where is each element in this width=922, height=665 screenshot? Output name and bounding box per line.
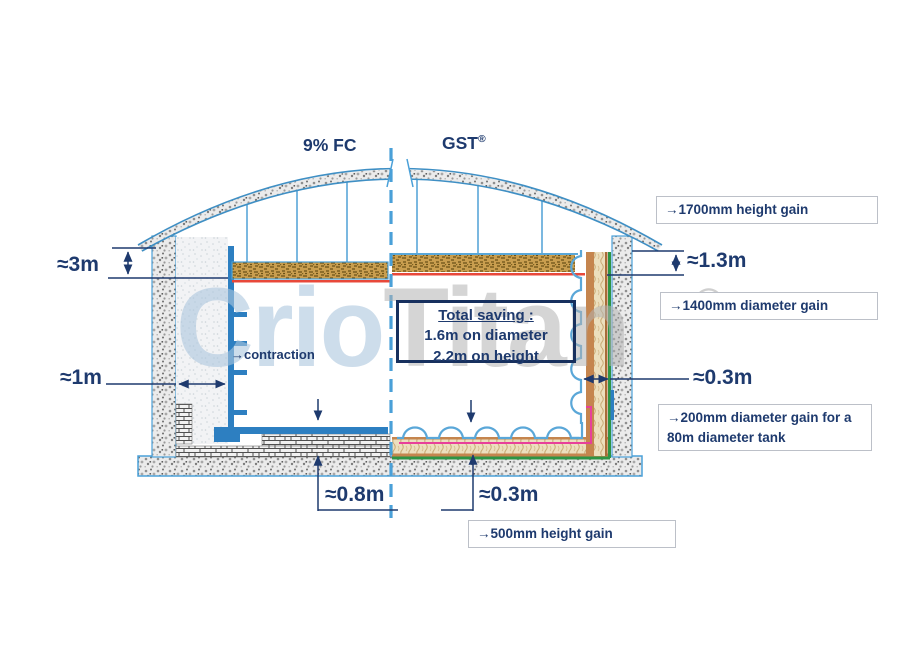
watermark-part1: Crio [176, 265, 383, 390]
callout-1700mm-height-gain: →1700mm height gain [656, 196, 878, 224]
total-saving-height: 2.2m on height [399, 347, 573, 367]
fc-column-header: 9% FC [303, 135, 356, 156]
dim-floor-left-label: ≈0.8m [325, 483, 384, 507]
total-saving-diameter: 1.6m on diameter [399, 326, 573, 346]
dim-left-height-label: ≈3m [57, 253, 99, 277]
left-concrete-wall [152, 236, 176, 457]
contraction-label: →contraction [231, 347, 315, 362]
total-saving-box: Total saving : 1.6m on diameter 2.2m on … [396, 300, 576, 363]
callout-500mm-height-gain: →500mm height gain [468, 520, 676, 548]
total-saving-title: Total saving : [399, 306, 573, 326]
dome-roof [138, 157, 662, 251]
gst-header-text: GST [442, 133, 478, 153]
callout-1400mm-diameter-gain: →1400mm diameter gain [660, 292, 878, 320]
callout-200mm-diameter-gain: →200mm diameter gain for a 80m diameter … [658, 404, 872, 451]
gst-floor-insulation [392, 437, 608, 457]
gst-wall-blue-segment [611, 390, 615, 420]
tank-comparison-diagram: CrioTitan ® 9% FC GST® ≈3m ≈1m ≈1.3m ≈0.… [0, 0, 922, 665]
dim-right-height-label: ≈1.3m [687, 249, 746, 273]
dim-left-width-label: ≈1m [60, 366, 102, 390]
gst-registered-mark: ® [478, 133, 486, 145]
dim-floor-right-label: ≈0.3m [479, 483, 538, 507]
dim-right-width-label: ≈0.3m [693, 366, 752, 390]
gst-column-header: GST® [442, 133, 486, 154]
